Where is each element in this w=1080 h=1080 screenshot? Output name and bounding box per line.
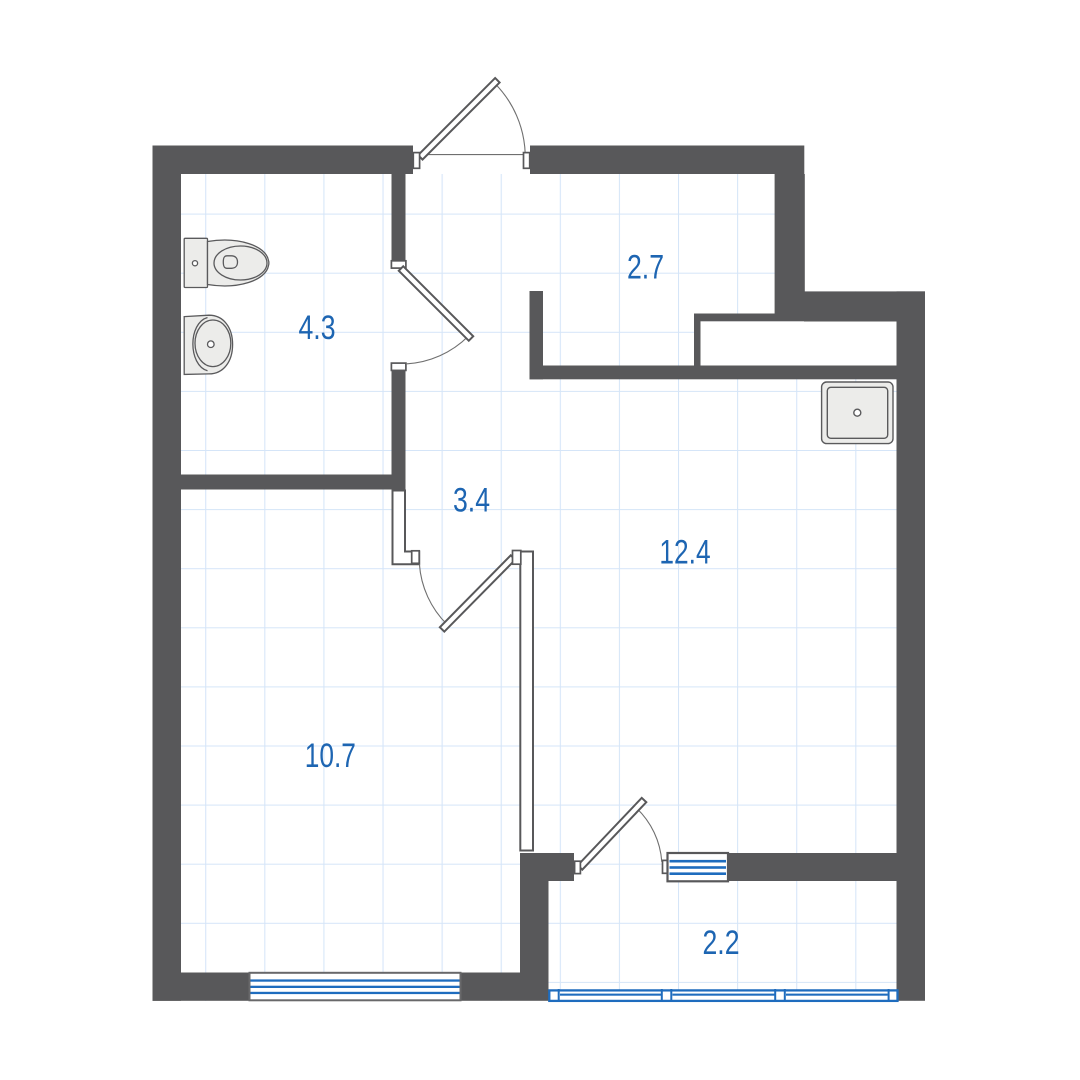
svg-text:4.3: 4.3 xyxy=(299,308,336,347)
svg-text:3.4: 3.4 xyxy=(453,480,490,519)
svg-text:12.4: 12.4 xyxy=(659,533,710,571)
svg-text:10.7: 10.7 xyxy=(305,736,356,774)
svg-text:2.2: 2.2 xyxy=(703,922,740,961)
svg-text:2.7: 2.7 xyxy=(627,247,664,286)
